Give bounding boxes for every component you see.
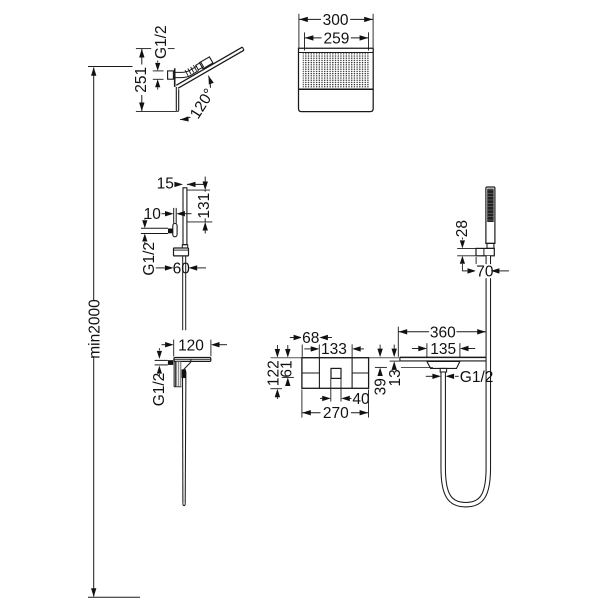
svg-text:360: 360 (430, 324, 456, 341)
svg-text:G1/2: G1/2 (151, 373, 168, 407)
svg-text:131: 131 (196, 193, 213, 219)
svg-text:15: 15 (157, 176, 174, 193)
svg-text:133: 133 (321, 341, 347, 358)
svg-text:min2000: min2000 (86, 299, 103, 359)
svg-text:G1/2: G1/2 (153, 25, 170, 59)
svg-text:13: 13 (387, 369, 404, 386)
svg-text:70: 70 (476, 264, 494, 281)
svg-text:300: 300 (323, 12, 349, 29)
svg-text:270: 270 (323, 405, 349, 422)
svg-text:61: 61 (279, 360, 296, 377)
svg-text:40: 40 (352, 391, 370, 408)
svg-text:68: 68 (302, 330, 319, 347)
svg-text:28: 28 (454, 220, 471, 237)
svg-text:G1/2: G1/2 (460, 369, 494, 386)
svg-text:259: 259 (323, 31, 349, 48)
svg-text:135: 135 (430, 341, 456, 358)
svg-text:60: 60 (173, 260, 191, 277)
svg-text:G1/2: G1/2 (141, 242, 158, 276)
svg-text:120: 120 (178, 337, 204, 354)
svg-text:251: 251 (133, 67, 150, 93)
